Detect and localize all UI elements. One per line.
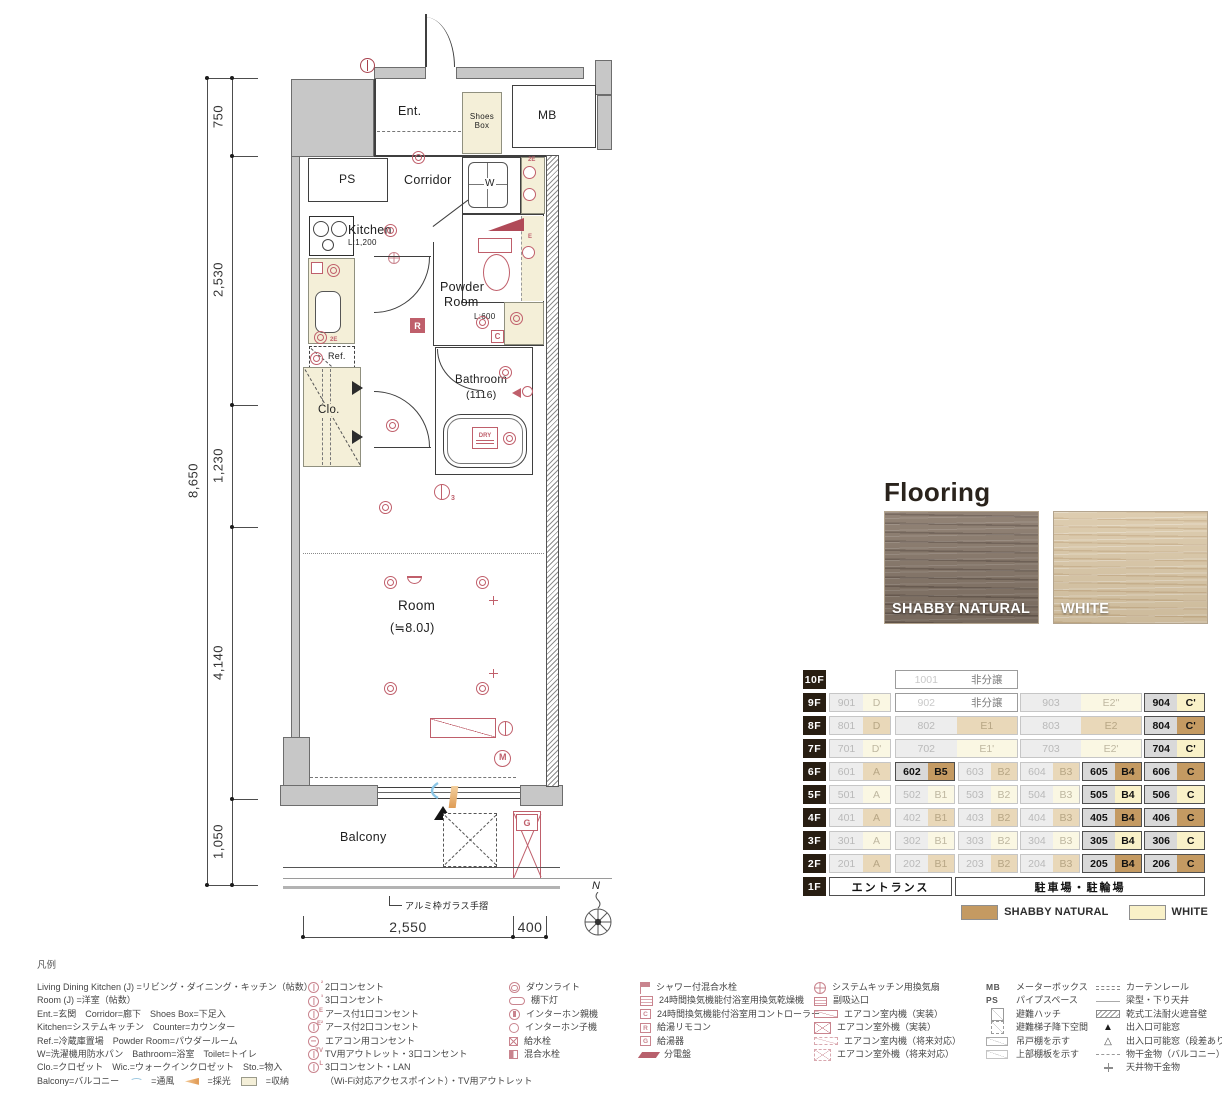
unit-cell[interactable]: 704C' (1144, 739, 1205, 758)
stack-flooring-legend: SHABBY NATURAL WHITE (803, 903, 1208, 921)
unit-cell[interactable]: 606C (1144, 762, 1205, 781)
toilet-bowl (483, 254, 510, 291)
dimension-dot (230, 403, 234, 407)
legend-outlet-column: 2口コンセント 3口コンセント アース付1口コンセント アース付2口コンセント … (308, 981, 533, 1088)
legend-item: エアコン室外機（将来対応） (814, 1048, 961, 1061)
legend-item: ▲出入口可能窓 (1096, 1021, 1222, 1034)
downlight-icon (384, 682, 397, 695)
flooring-swatch-shabby-natural: SHABBY NATURAL (884, 511, 1039, 624)
flooring-title: Flooring (884, 477, 990, 508)
dim-2550: 2,550 (368, 919, 448, 935)
shower-mixer-icon (640, 982, 650, 994)
legend-item: TV用アウトレット・3口コンセント (308, 1048, 533, 1061)
outlet-count: 3 (451, 495, 455, 502)
kitchen-fan-icon (814, 982, 826, 994)
outlet-2-icon (308, 982, 319, 993)
unit-cell[interactable]: 802E1 (895, 716, 1018, 735)
unit-cell[interactable]: 201A (829, 854, 891, 873)
door-leaf (374, 447, 431, 448)
unit-cell[interactable]: 601A (829, 762, 891, 781)
c-badge-label: C (495, 332, 501, 341)
dimension-dot (205, 76, 209, 80)
unit-cell[interactable]: 202B1 (895, 854, 955, 873)
hot-water-remote-icon: R (640, 1023, 651, 1033)
access-window-icon: ▲ (1101, 1021, 1115, 1034)
outlet-tv-icon (308, 1049, 319, 1060)
downlight-icon (384, 576, 397, 589)
room-label-powder-2: Room (444, 295, 479, 309)
wall (280, 785, 378, 806)
door-arc (374, 391, 430, 447)
ac-outdoor-future-icon (814, 1049, 831, 1061)
legend-item: アース付2口コンセント (308, 1021, 533, 1034)
unit-cell[interactable]: 502B1 (895, 785, 955, 804)
distribution-board-icon (638, 1052, 660, 1058)
white-swatch-label: WHITE (1172, 906, 1208, 918)
unit-cell[interactable]: 703E2' (1020, 739, 1142, 758)
unit-cell[interactable]: 501A (829, 785, 891, 804)
flooring-swatch-white: WHITE (1053, 511, 1208, 624)
legend-terms-column: Living Dining Kitchen (J) =リビング・ダイニング・キッ… (37, 981, 313, 1088)
compass-icon (578, 892, 620, 940)
toilet-tank (478, 238, 512, 253)
legend-aircon-column: システムキッチン用換気扇 副吸込口 エアコン室内機（実装） エアコン室外機（実装… (814, 981, 961, 1061)
legend-item: （Wi-Fi対応アクセスポイント）・TV用アウトレット (308, 1075, 533, 1088)
unit-cell[interactable]: 306C (1144, 831, 1205, 850)
dim-4140: 4,140 (211, 628, 226, 698)
water-tap-icon (509, 1037, 518, 1046)
dry-unit (476, 440, 494, 441)
dimension-dot (511, 935, 515, 939)
legend-item: アース付1口コンセント (308, 1008, 533, 1021)
burner-icon (322, 239, 334, 251)
remote-badge: R (410, 318, 425, 333)
dimension-dot (544, 935, 548, 939)
unit-cell[interactable]: 801D (829, 716, 891, 735)
unit-cell[interactable]: 603B2 (958, 762, 1018, 781)
ac-indoor-icon (814, 1010, 838, 1018)
legend-item: 2口コンセント (308, 981, 533, 994)
unit-cell[interactable]: 405B4 (1082, 808, 1142, 827)
unit-cell[interactable]: 302B1 (895, 831, 955, 850)
dimension-tick (232, 156, 258, 157)
ps-abbr: PS (986, 994, 1010, 1007)
downlight-icon (384, 224, 397, 237)
legend-item: 天井物干金物 (1096, 1061, 1222, 1074)
legend-light-label: =採光 (207, 1076, 230, 1086)
legend-storage-label: =収納 (266, 1076, 289, 1086)
dimension-dot (230, 797, 234, 801)
legend-item: △出入口可能窓（段差あり） (1096, 1035, 1222, 1048)
legend-item: 副吸込口 (814, 994, 961, 1007)
wall (283, 737, 310, 787)
unit-cell[interactable]: 702E1' (895, 739, 1018, 758)
outlet-icon (311, 262, 323, 274)
door-arc (425, 17, 455, 67)
unit-cell[interactable]: 1001非分譲 (895, 670, 1018, 689)
downlight-icon (476, 682, 489, 695)
legend-item: 物干金物（バルコニー） (1096, 1048, 1222, 1061)
ac-outlet-icon (505, 722, 506, 735)
legend-item: カーテンレール (1096, 981, 1222, 994)
outlet-2e-badge: 2E (528, 157, 535, 163)
dry-unit: DRY (472, 427, 498, 449)
flooring-swatch-label: WHITE (1061, 601, 1109, 617)
unit-cell[interactable]: 904C' (1144, 693, 1205, 712)
legend-item: G給湯器 (640, 1035, 820, 1048)
sink (315, 291, 341, 333)
dim-overall: 8,650 (186, 446, 201, 516)
g-badge-label: G (523, 818, 530, 828)
hanging-cupboard-icon (986, 1037, 1008, 1046)
compass-north-label: N (592, 880, 600, 892)
dim-1050: 1,050 (211, 807, 226, 877)
room-label-room: Room (398, 598, 435, 613)
unit-cell[interactable]: 504B3 (1020, 785, 1080, 804)
unit-cell[interactable]: 903E2'' (1020, 693, 1142, 712)
shower-icon (512, 388, 521, 398)
downlight-icon (412, 151, 425, 164)
legend-item: Room (J) =洋室（帖数） (37, 994, 313, 1007)
escape-ladder-icon (991, 1021, 1004, 1034)
wall (291, 156, 300, 760)
legend-build-column: カーテンレール 梁型・下り天井 乾式工法耐火遮音壁 ▲出入口可能窓 △出入口可能… (1096, 981, 1222, 1075)
bath-dryer-icon (640, 996, 653, 1006)
unit-cell[interactable]: 803E2 (1020, 716, 1142, 735)
dry-unit (476, 443, 494, 444)
handrail-pointer (389, 905, 402, 906)
room-label-shoes-box: Shoes Box (466, 112, 498, 130)
ceiling-hook-icon (489, 596, 498, 605)
basin-icon (510, 312, 523, 325)
dim-2530: 2,530 (211, 245, 226, 315)
ventilation-icon (130, 1078, 143, 1085)
ground-line (283, 886, 560, 889)
balcony-edge (283, 867, 560, 868)
outlet-e-badge: E (528, 234, 532, 240)
floor-label: 6F (803, 762, 826, 781)
intercom-main-icon (509, 1009, 520, 1020)
outlet-earth2-icon (308, 1022, 319, 1033)
unit-cell[interactable]: 503B2 (958, 785, 1018, 804)
unit-cell[interactable]: 605B4 (1082, 762, 1142, 781)
unit-cell[interactable]: 804C' (1144, 716, 1205, 735)
wall-line (433, 242, 434, 345)
stack-row-6f: 6F 601A 602B5 603B2 604B3 605B4 606C (803, 762, 1208, 781)
legend-item: 棚下灯 (509, 994, 598, 1007)
legend-item: MBメーターボックス (986, 981, 1088, 994)
legend-item: R給湯リモコン (640, 1021, 820, 1034)
floor-label: 7F (803, 739, 826, 758)
legend-item: Ent.=玄関 Corridor=廊下 Shoes Box=下足入 (37, 1008, 313, 1021)
legend-item: 混合水栓 (509, 1048, 598, 1061)
room-label-ps: PS (339, 172, 356, 186)
unit-cell[interactable]: 505B4 (1082, 785, 1142, 804)
legend-item: 乾式工法耐火遮音壁 (1096, 1008, 1222, 1021)
ac-outdoor-icon (814, 1022, 831, 1034)
room-label-ent: Ent. (398, 104, 421, 118)
shelf-light-icon (509, 997, 525, 1005)
dimension-tick (232, 405, 258, 406)
floor-label: 4F (803, 808, 826, 827)
unit-cell[interactable]: 401A (829, 808, 891, 827)
dimension-dot (230, 76, 234, 80)
unit-cell[interactable]: 902非分譲 (895, 693, 1018, 712)
upper-shelf-icon (986, 1050, 1008, 1059)
stack-row-2f: 2F 201A 202B1 203B2 204B3 205B4 206C (803, 854, 1208, 873)
downlight-icon (509, 982, 520, 993)
room-label-ref: Ref. (327, 351, 347, 361)
shelf-light-icon (407, 576, 422, 584)
folding-door-icon (352, 430, 363, 444)
unit-cell[interactable]: 406C (1144, 808, 1205, 827)
unit-cell[interactable]: 604B3 (1020, 762, 1080, 781)
burner-icon (313, 221, 329, 237)
vanity (504, 302, 544, 345)
shabby-swatch-label: SHABBY NATURAL (1004, 906, 1108, 918)
legend-item: インターホン子機 (509, 1021, 598, 1034)
legend-item: エアコン用コンセント (308, 1035, 533, 1048)
dimension-line (207, 78, 208, 885)
flooring-swatch-label: SHABBY NATURAL (892, 601, 1030, 617)
stack-row-5f: 5F 501A 502B1 503B2 504B3 505B4 506C (803, 785, 1208, 804)
wall-line (374, 79, 376, 156)
wall (456, 67, 584, 79)
legend-item: 避難梯子降下空間 (986, 1021, 1088, 1034)
intercom-sub-icon (509, 1023, 519, 1033)
outlet-icon (310, 352, 323, 365)
ceiling-hook-icon (489, 669, 498, 678)
r-badge-label: R (414, 321, 421, 331)
unit-cell[interactable]: 701D' (829, 739, 891, 758)
wall (374, 67, 426, 79)
room-size: (≒8.0J) (390, 620, 435, 635)
daylight-icon (449, 786, 459, 808)
stack-row-8f: 8F 801D 802E1 803E2 804C' (803, 716, 1208, 735)
legend-fixture-column: ダウンライト 棚下灯 インターホン親機 インターホン子機 給水栓 混合水栓 (509, 981, 598, 1061)
legend-item: C24時間換気機能付浴室用コントローラー (640, 1008, 820, 1021)
legend-item: インターホン親機 (509, 1008, 598, 1021)
dim-750: 750 (211, 82, 226, 152)
fireproof-wall-icon (1096, 1010, 1120, 1018)
legend-item: 24時間換気機能付浴室用換気乾燥機 (640, 994, 820, 1007)
dimension-line (303, 937, 546, 938)
room-label-clo: Clo. (316, 404, 342, 416)
unit-cell[interactable]: 305B4 (1082, 831, 1142, 850)
step-line (377, 131, 461, 132)
floor-label: 2F (803, 854, 826, 873)
dimension-tick (232, 799, 258, 800)
legend-item: エアコン室外機（実装） (814, 1021, 961, 1034)
room-label-w: W (484, 178, 496, 189)
legend-item: Kitchen=システムキッチン Counter=カウンター (37, 1021, 313, 1034)
ac-indoor-unit (430, 718, 496, 738)
outlet-3-icon (308, 996, 319, 1007)
stack-row-1f: 1F エントランス 駐車場・駐輪場 (803, 877, 1208, 896)
stack-row-4f: 4F 401A 402B1 403B2 404B3 405B4 406C (803, 808, 1208, 827)
legend-item: Balcony=バルコニー =通風 =採光 =収納 (37, 1075, 313, 1088)
dimension-dot (230, 883, 234, 887)
legend-item: 分電盤 (640, 1048, 820, 1061)
shabby-swatch-icon (961, 905, 998, 920)
floor-label: 10F (803, 670, 826, 689)
stack-row-3f: 3F 301A 302B1 303B2 304B3 305B4 306C (803, 831, 1208, 850)
dimension-dot (205, 883, 209, 887)
wall (520, 785, 563, 806)
parking-cell: 駐車場・駐輪場 (955, 877, 1205, 896)
unit-cell[interactable]: 402B1 (895, 808, 955, 827)
downlight-icon (499, 366, 512, 379)
room-label-balcony: Balcony (340, 830, 387, 844)
outlet-icon (523, 188, 536, 201)
daylight-icon (185, 1078, 199, 1085)
room-label-corridor: Corridor (404, 173, 452, 187)
legend-balcony-label: Balcony=バルコニー (37, 1076, 119, 1086)
stack-row-9f: 9F 901D 902非分譲 903E2'' 904C' (803, 693, 1208, 712)
legend-item: シャワー付混合水栓 (640, 981, 820, 994)
floor-label: 3F (803, 831, 826, 850)
room-label-powder-1: Powder (440, 280, 484, 294)
wall (597, 95, 612, 150)
unit-cell[interactable]: 404B3 (1020, 808, 1080, 827)
fireproof-wall (546, 155, 559, 787)
legend-item: システムキッチン用換気扇 (814, 981, 961, 994)
zone-boundary (303, 553, 544, 554)
dimension-dot (301, 935, 305, 939)
legend-misc-column: MBメーターボックス PSパイプスペース 避難ハッチ 避難梯子降下空間 吊戸棚を… (986, 981, 1088, 1061)
ac-indoor-future-icon (814, 1037, 838, 1045)
legend-vent-label: =通風 (151, 1076, 174, 1086)
closet-rail (322, 369, 323, 465)
white-swatch-icon (1129, 905, 1166, 920)
bathroom-size: (1116) (466, 389, 497, 401)
door-arc (374, 257, 430, 313)
unit-cell[interactable]: 303B2 (958, 831, 1018, 850)
dim-1230: 1,230 (211, 431, 226, 501)
escape-hatch-icon (991, 1008, 1004, 1021)
room-label-mb: MB (538, 108, 557, 122)
legend-item: 梁型・下り天井 (1096, 994, 1222, 1007)
legend-item: 上部棚板を示す (986, 1048, 1088, 1061)
dimension-line (232, 78, 233, 885)
unit-cell[interactable]: 205B4 (1082, 854, 1142, 873)
dimension-dot (230, 154, 234, 158)
downlight-icon (327, 264, 340, 277)
curtain-rail-line (310, 777, 516, 778)
c-badge: C (491, 330, 504, 343)
legend-title: 凡例 (37, 957, 56, 971)
legend-item: Clo.=クロゼット Wic.=ウォークインクロゼット Sto.=物入 (37, 1061, 313, 1074)
mb-abbr: MB (986, 981, 1010, 994)
stack-row-7f: 7F 701D' 702E1' 703E2' 704C' (803, 739, 1208, 758)
balcony-slab (283, 878, 612, 879)
access-window-step-icon: △ (1101, 1035, 1115, 1048)
dry-label: DRY (479, 433, 491, 439)
unit-cell[interactable]: 301A (829, 831, 891, 850)
g-badge: G (516, 814, 538, 831)
downlight-icon (503, 432, 516, 445)
downlight-icon (379, 501, 392, 514)
storage-icon (241, 1077, 257, 1086)
outlet-icon (441, 485, 442, 499)
unit-cell[interactable]: 403B2 (958, 808, 1018, 827)
legend-item: W=洗濯機用防水パン Bathroom=浴室 Toilet=トイレ (37, 1048, 313, 1061)
wall (291, 79, 374, 157)
legend-item: 3口コンセント (308, 994, 533, 1007)
dimension-tick (232, 527, 258, 528)
storage-strip (521, 157, 545, 214)
unit-cell[interactable]: 901D (829, 693, 891, 712)
floorplan-page: MB Ent. Shoes Box PS Corridor W 2E E Pow… (0, 0, 1222, 1100)
legend-item: 3口コンセント・LAN (308, 1061, 533, 1074)
unit-cell[interactable]: 304B3 (1020, 831, 1080, 850)
unit-cell[interactable]: 204B3 (1020, 854, 1080, 873)
water-heater-icon: G (640, 1036, 651, 1046)
wall (595, 60, 612, 95)
outlet-lan-icon (308, 1062, 319, 1073)
legend-item: PSパイプスペース (986, 994, 1088, 1007)
storage-strip (521, 216, 544, 301)
intercom-icon (367, 60, 368, 71)
toilet-controller-icon (522, 246, 535, 259)
legend-item: エアコン室内機（実装） (814, 1008, 961, 1021)
kitchen-counter-len: L:1,200 (348, 238, 377, 247)
ceiling-laundry-icon (1104, 1063, 1113, 1072)
legend-item: エアコン室内機（将来対応） (814, 1035, 961, 1048)
laundry-fitting-icon (1096, 1054, 1120, 1055)
legend-item: 給水栓 (509, 1035, 598, 1048)
dimension-dot (230, 525, 234, 529)
curtain-rail-icon (1096, 986, 1120, 990)
legend-item: 吊戸棚を示す (986, 1035, 1088, 1048)
floor-stack-table: 10F 1001非分譲 9F 901D 902非分譲 903E2'' 904C'… (803, 670, 1208, 930)
burner-icon (331, 221, 347, 237)
faucet-icon (522, 386, 533, 397)
m-badge-label: M (499, 752, 507, 762)
entrance-cell: エントランス (829, 877, 952, 896)
bath-controller-icon: C (640, 1009, 651, 1019)
unit-cell[interactable]: 506C (1144, 785, 1205, 804)
legend-bath-column: シャワー付混合水栓 24時間換気機能付浴室用換気乾燥機 C24時間換気機能付浴室… (640, 981, 820, 1061)
downlight-icon (386, 419, 399, 432)
floor-label: 8F (803, 716, 826, 735)
unit-cell[interactable]: 206C (1144, 854, 1205, 873)
downlight-icon (476, 576, 489, 589)
unit-cell[interactable]: 602B5 (895, 762, 955, 781)
outlet-icon (523, 166, 536, 179)
legend-item: ダウンライト (509, 981, 598, 994)
legend-item: Living Dining Kitchen (J) =リビング・ダイニング・キッ… (37, 981, 313, 994)
suction-inlet-icon (814, 997, 827, 1006)
dimension-tick (303, 916, 304, 937)
folding-door-icon (352, 381, 363, 395)
closet-rail (330, 369, 331, 465)
floor-label: 1F (803, 877, 826, 896)
handrail-note: アルミ枠ガラス手摺 (405, 899, 488, 912)
legend-item: 避難ハッチ (986, 1008, 1088, 1021)
floor-label: 5F (803, 785, 826, 804)
outlet-2e-badge: 2E (330, 337, 337, 343)
dim-400: 400 (510, 919, 550, 935)
outlet-icon (314, 331, 327, 344)
downlight-icon (476, 316, 489, 329)
beam-icon (1096, 1001, 1120, 1002)
mixing-tap-icon (509, 1050, 518, 1059)
window (378, 792, 520, 793)
unit-cell[interactable]: 203B2 (958, 854, 1018, 873)
stack-row-10f: 10F 1001非分譲 (803, 670, 1208, 689)
legend-item: Ref.=冷蔵庫置場 Powder Room=パウダールーム (37, 1035, 313, 1048)
